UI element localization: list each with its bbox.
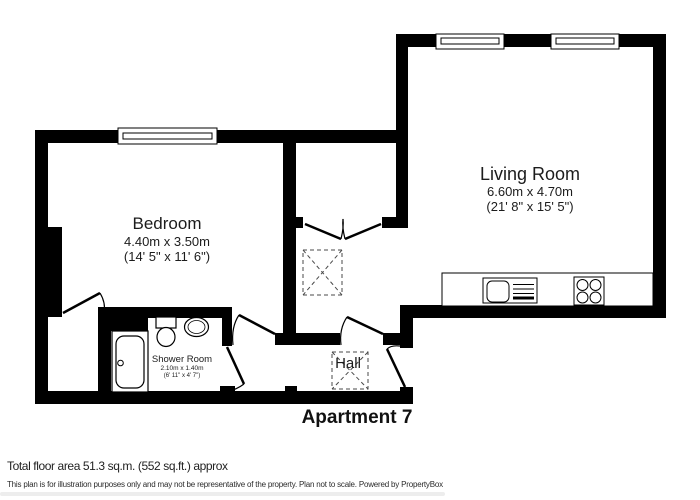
wall-shower-right: [222, 314, 232, 346]
plan-title: Apartment 7: [257, 406, 457, 430]
shower-room-dims-metric: 2.10m x 1.40m: [132, 365, 232, 373]
window-symbol-bedroom: [118, 128, 217, 144]
disclaimer-text: This plan is for illustration purposes o…: [7, 480, 443, 489]
living-room-label: Living Room 6.60m x 4.70m (21' 8" x 15' …: [430, 164, 630, 214]
door-bedroom-vestibule: [233, 315, 275, 345]
shower-room-dims-imperial: (6' 11" x 4' 7"): [132, 373, 232, 380]
wall-vestibule-stub: [285, 386, 297, 396]
hall-name: Hall: [318, 356, 378, 372]
wall-outer-left: [35, 130, 48, 404]
toilet-symbol: [156, 317, 176, 347]
shower-room-name: Shower Room: [132, 354, 232, 365]
window-symbol-living-1: [436, 34, 504, 49]
footer-divider: [0, 492, 445, 496]
wall-hall-right-bottom: [400, 387, 413, 404]
wall-shower-left: [98, 307, 111, 397]
kitchen-sink-symbol: [483, 278, 537, 303]
hob-symbol: [574, 277, 604, 305]
wall-left-step: [48, 227, 62, 317]
hall-label: Hall: [318, 356, 378, 372]
wall-bath-alcove: [110, 318, 148, 331]
windows: [118, 34, 619, 144]
storage-box-symbol: [303, 250, 342, 295]
floorplan-page: Bedroom 4.40m x 3.50m (14' 5" x 11' 6") …: [0, 0, 700, 500]
wall-livingroom-left-stub: [382, 217, 408, 228]
total-area-text: Total floor area 51.3 sq.m. (552 sq.ft.)…: [7, 459, 228, 473]
basin-symbol: [185, 318, 209, 337]
wall-shower-right-stub: [220, 386, 235, 396]
window-symbol-living-2: [551, 34, 619, 49]
wall-closet-door-stub: [48, 305, 62, 317]
kitchen-counter: [442, 273, 653, 306]
wall-shower-top: [98, 307, 232, 318]
wall-bedroom-top: [35, 130, 408, 143]
living-room-dims-metric: 6.60m x 4.70m: [430, 184, 630, 199]
living-room-name: Living Room: [430, 164, 630, 184]
wall-bedroom-right: [283, 143, 296, 345]
wall-hall-band-left: [275, 333, 340, 345]
double-doors-closet: [305, 219, 381, 239]
bedroom-label: Bedroom 4.40m x 3.50m (14' 5" x 11' 6"): [67, 214, 267, 264]
bedroom-dims-imperial: (14' 5" x 11' 6"): [67, 249, 267, 264]
wall-hall-band-right: [383, 333, 413, 345]
shower-room-label: Shower Room 2.10m x 1.40m (6' 11" x 4' 7…: [132, 354, 232, 380]
wall-closet-stub: [283, 217, 303, 228]
door-entrance: [387, 346, 405, 387]
wall-livingroom-left: [396, 34, 408, 228]
door-hall-lobby: [341, 317, 383, 345]
wall-livingroom-bottom: [400, 305, 666, 318]
wall-livingroom-right: [653, 34, 666, 318]
bedroom-dims-metric: 4.40m x 3.50m: [67, 234, 267, 249]
bedroom-name: Bedroom: [67, 214, 267, 234]
living-room-dims-imperial: (21' 8" x 15' 5"): [430, 199, 630, 214]
